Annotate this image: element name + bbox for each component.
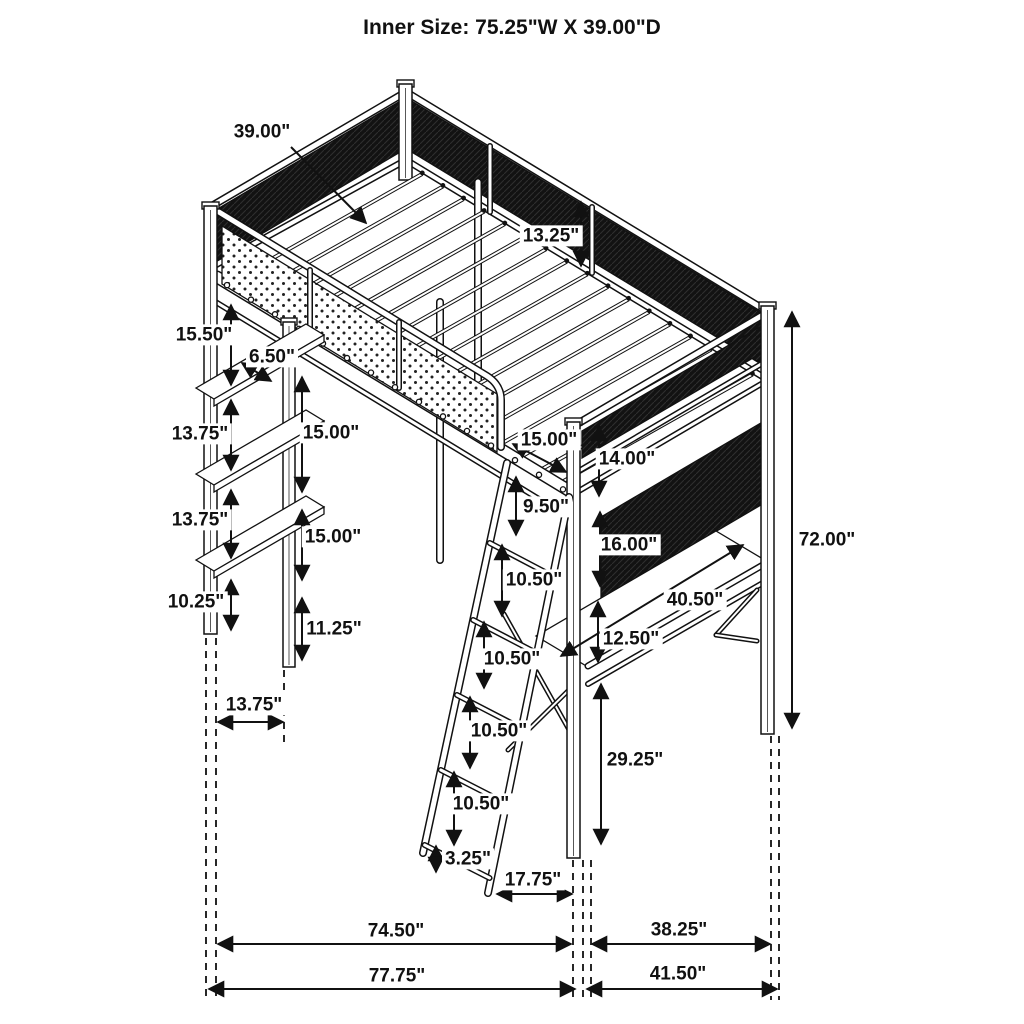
dim-label-rung-spacing-3: 10.50" <box>468 720 531 741</box>
dim-label-frame-span: 74.50" <box>365 920 428 941</box>
dim-label-ladder-opening: 15.00" <box>518 429 581 450</box>
dim-label-rung-spacing-1: 10.50" <box>503 569 566 590</box>
ladder <box>423 463 569 893</box>
dim-label-guardrail-height: 13.25" <box>520 225 583 246</box>
dim-label-desk-drop: 12.50" <box>600 628 663 649</box>
page-title: Inner Size: 75.25"W X 39.00"D <box>363 16 661 40</box>
extension-lines <box>206 638 779 1000</box>
dim-label-shelf-post-foot: 11.25" <box>303 618 365 639</box>
dim-label-top-shelf-gap: 15.50" <box>173 324 236 345</box>
dim-label-ladder-bottom-gap: 3.25" <box>442 848 494 869</box>
dim-label-ladder-foot-offset: 17.75" <box>502 869 565 890</box>
dimension-diagram-page: Inner Size: 75.25"W X 39.00"D 39.00"13.2… <box>0 0 1024 1024</box>
dim-label-rung-spacing-2: 10.50" <box>481 648 544 669</box>
dim-label-bed-depth: 39.00" <box>231 121 294 142</box>
dim-label-shelf-spacing-2: 15.00" <box>302 526 365 547</box>
dim-label-shelf-unit-depth: 13.75" <box>223 694 286 715</box>
dim-label-desk-length: 40.50" <box>664 589 727 610</box>
dim-label-overall-end-span: 41.50" <box>647 963 710 984</box>
dim-label-shelf-spacing-1: 15.00" <box>300 422 363 443</box>
dim-label-bottom-shelf-height: 10.25" <box>165 591 228 612</box>
dim-label-end-mesh-height: 16.00" <box>598 534 661 555</box>
dim-label-shelf-gap-2: 13.75" <box>169 509 232 530</box>
dim-label-shelf-gap-1: 13.75" <box>169 423 232 444</box>
dim-label-desk-clearance: 29.25" <box>604 749 667 770</box>
dim-label-ladder-top-spacing: 9.50" <box>520 496 572 517</box>
dim-label-overall-height: 72.00" <box>796 529 859 550</box>
dim-label-desk-end-span: 38.25" <box>648 919 711 940</box>
dim-label-end-panel-gap: 14.00" <box>596 448 659 469</box>
dim-label-rung-spacing-4: 10.50" <box>450 793 513 814</box>
dim-label-shelf-depth: 6.50" <box>246 346 298 367</box>
dim-label-overall-length: 77.75" <box>366 965 429 986</box>
